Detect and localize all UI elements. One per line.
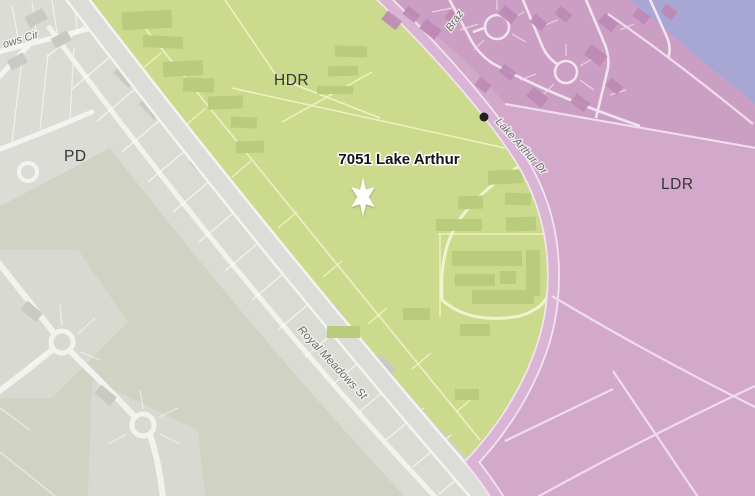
building-footprint xyxy=(335,45,367,57)
building-footprint xyxy=(317,86,353,94)
zone-label-ldr: LDR xyxy=(661,176,694,193)
building-footprint xyxy=(328,65,358,76)
building-footprint xyxy=(505,193,531,206)
map-viewport[interactable]: ows Cir Braz Lake Arthur Dr Royal Meadow… xyxy=(0,0,755,496)
building-footprint xyxy=(506,216,536,231)
building-footprint xyxy=(122,10,173,31)
building-footprint xyxy=(472,290,534,304)
building-footprint xyxy=(436,219,482,231)
building-footprint xyxy=(458,196,483,210)
marker-label: 7051 Lake Arthur xyxy=(338,151,459,168)
building-footprint xyxy=(327,326,360,338)
building-footprint xyxy=(231,117,257,129)
zone-label-pd: PD xyxy=(64,148,87,165)
building-footprint xyxy=(455,389,479,400)
map-canvas[interactable]: ows Cir Braz Lake Arthur Dr Royal Meadow… xyxy=(0,0,755,496)
building-footprint xyxy=(488,169,524,185)
building-footprint xyxy=(460,324,490,336)
building-footprint xyxy=(452,251,522,266)
zone-label-hdr: HDR xyxy=(274,72,309,89)
building-footprint xyxy=(455,274,495,286)
building-footprint xyxy=(403,308,430,320)
building-footprint xyxy=(236,141,264,154)
building-footprint xyxy=(500,271,516,284)
building-footprint xyxy=(143,35,184,49)
building-footprint xyxy=(526,250,540,296)
poi-dot xyxy=(480,113,489,122)
building-footprint xyxy=(183,77,214,92)
building-footprint xyxy=(208,95,243,109)
building-footprint xyxy=(163,60,204,77)
